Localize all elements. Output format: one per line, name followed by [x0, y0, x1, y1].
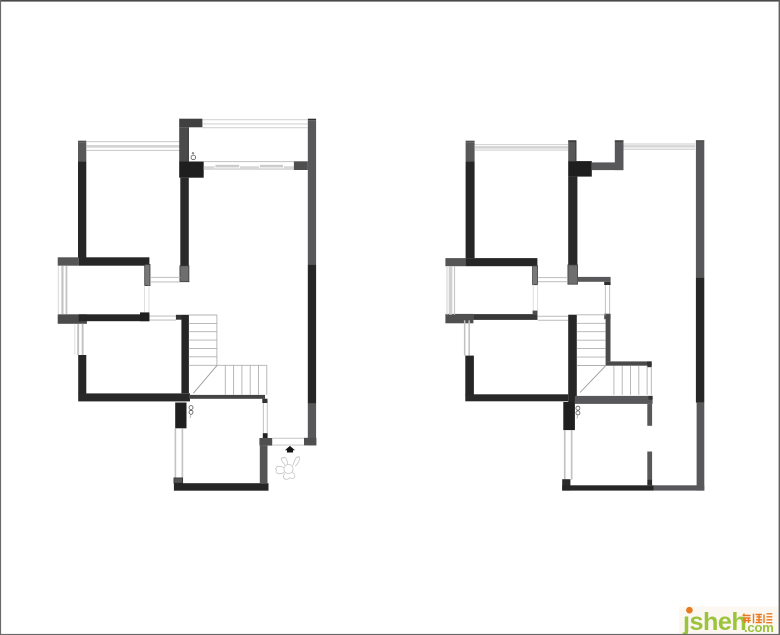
svg-text:.com: .com	[744, 620, 774, 635]
